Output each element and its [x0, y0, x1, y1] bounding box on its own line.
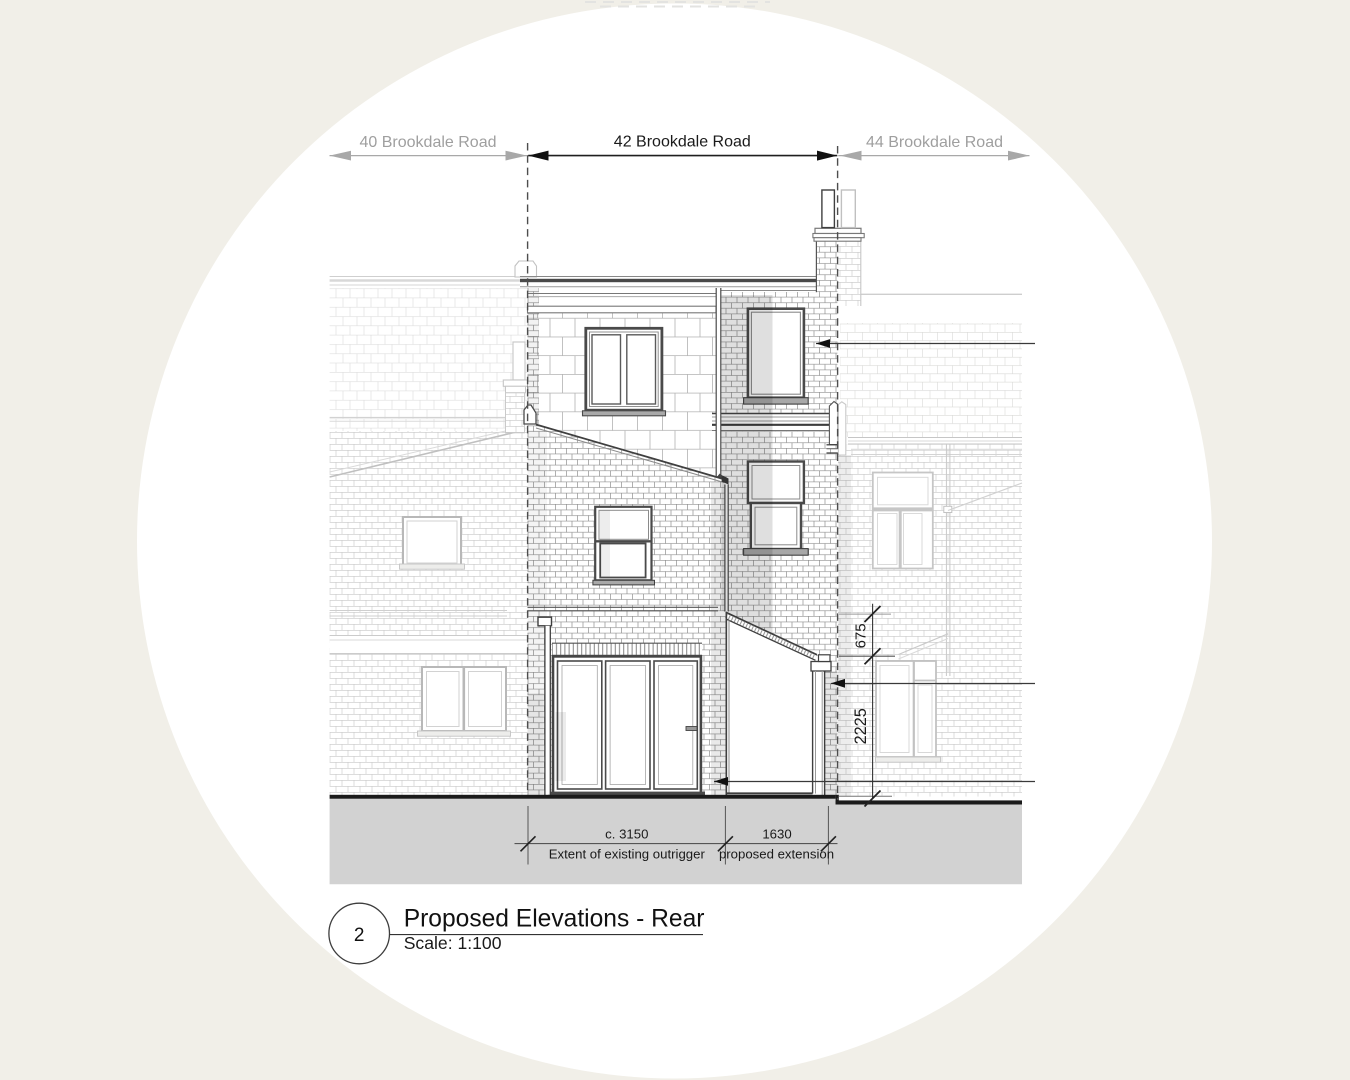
svg-text:44 Brookdale Road: 44 Brookdale Road — [866, 134, 1003, 151]
svg-text:Scale: 1:100: Scale: 1:100 — [404, 933, 502, 953]
svg-text:42 Brookdale Road: 42 Brookdale Road — [614, 134, 751, 151]
svg-text:2: 2 — [354, 925, 365, 946]
svg-text:Proposed Elevations - Rear: Proposed Elevations - Rear — [404, 906, 705, 933]
svg-text:2225: 2225 — [852, 708, 870, 744]
svg-text:c. 3150: c. 3150 — [605, 827, 648, 842]
svg-text:675: 675 — [853, 623, 870, 648]
svg-text:1630: 1630 — [762, 827, 791, 842]
svg-text:Extent of existing outrigger: Extent of existing outrigger — [549, 847, 706, 862]
svg-text:40 Brookdale Road: 40 Brookdale Road — [360, 134, 497, 151]
svg-text:proposed extension: proposed extension — [719, 847, 834, 862]
